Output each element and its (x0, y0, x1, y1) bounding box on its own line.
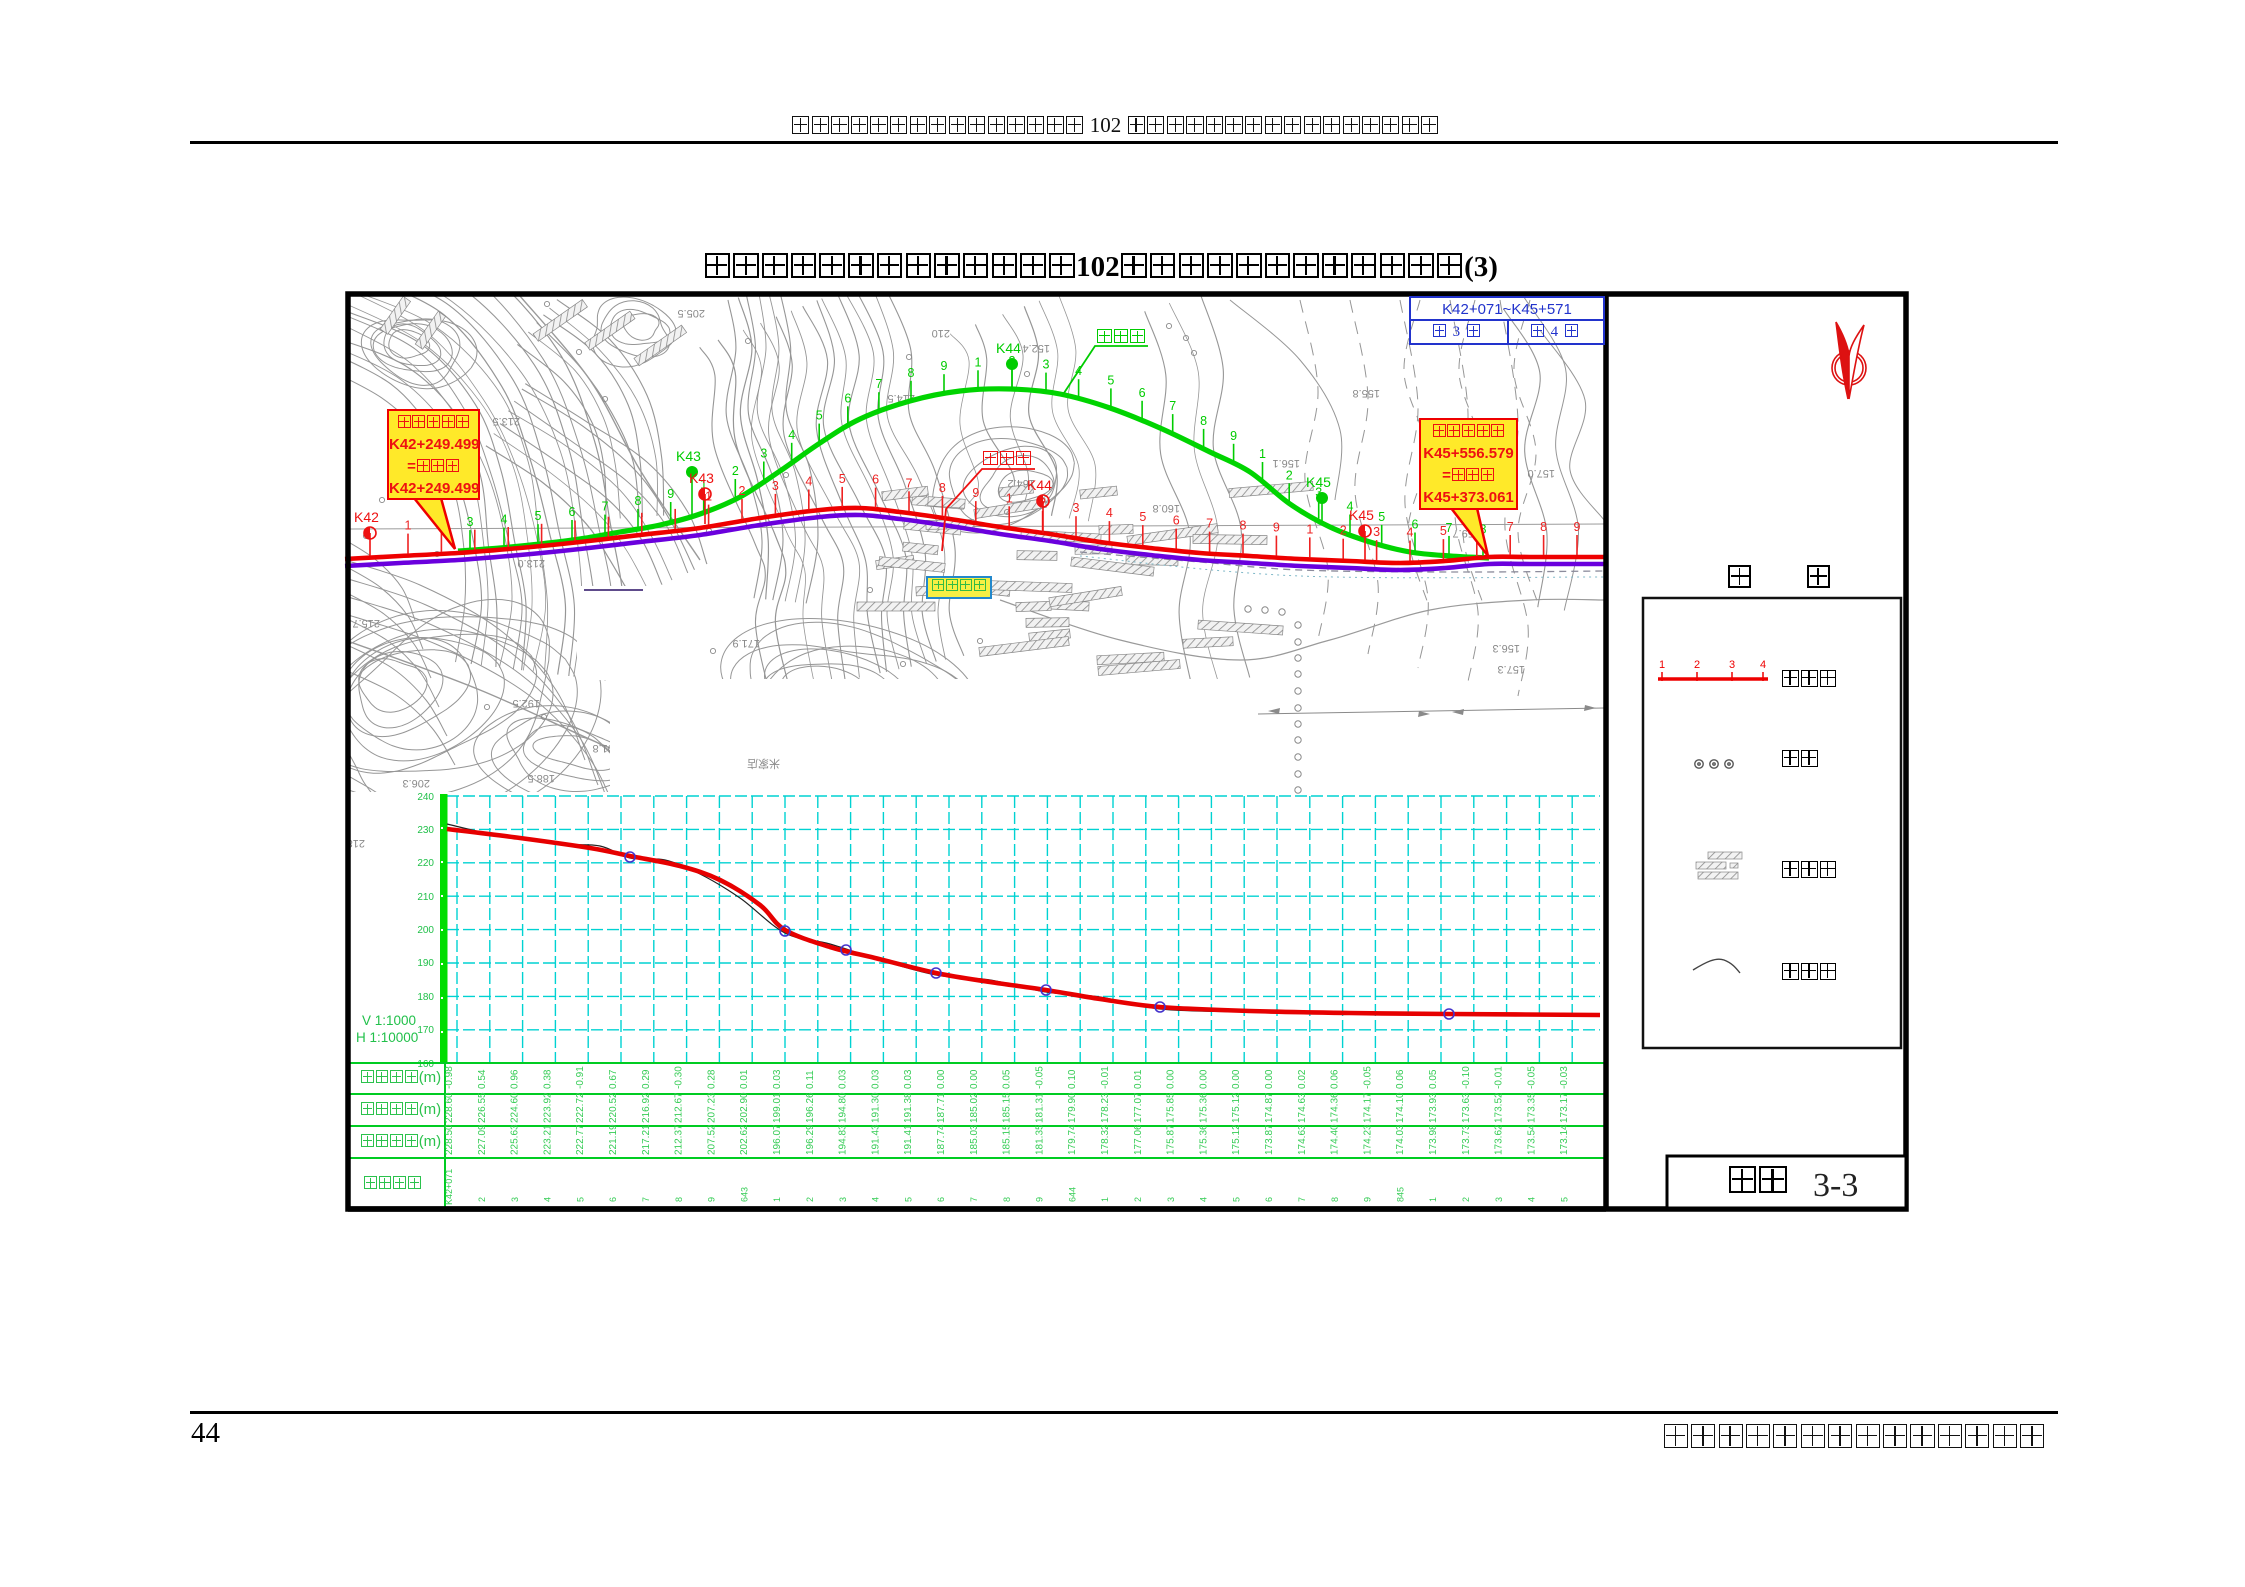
svg-text:8: 8 (908, 366, 915, 380)
svg-text:0.00: 0.00 (1198, 1069, 1209, 1089)
svg-text:2: 2 (1133, 1197, 1143, 1202)
svg-text:7: 7 (906, 476, 913, 490)
svg-text:173.52: 173.52 (1494, 1092, 1505, 1123)
svg-text:-0.05: -0.05 (1362, 1066, 1373, 1089)
svg-text:185.02: 185.02 (969, 1092, 980, 1123)
svg-text:6: 6 (569, 505, 576, 519)
svg-text:6: 6 (1264, 1197, 1274, 1202)
svg-text:227.09: 227.09 (477, 1124, 488, 1155)
svg-text:175.85: 175.85 (1166, 1092, 1177, 1123)
svg-text:5: 5 (1107, 373, 1114, 387)
svg-text:0.10: 0.10 (1067, 1069, 1078, 1089)
svg-text:4: 4 (1527, 1197, 1537, 1202)
svg-text:5: 5 (1139, 510, 1146, 524)
svg-text:221.19: 221.19 (608, 1124, 619, 1155)
svg-text:643: 643 (739, 1187, 749, 1202)
svg-text:8: 8 (1540, 520, 1547, 534)
svg-text:-0.91: -0.91 (575, 1066, 586, 1089)
svg-text:0.00: 0.00 (936, 1069, 947, 1089)
svg-text:196.26: 196.26 (805, 1092, 816, 1123)
svg-text:8: 8 (1002, 1197, 1012, 1202)
svg-text:0.02: 0.02 (1297, 1069, 1308, 1089)
svg-text:179.74: 179.74 (1067, 1124, 1078, 1155)
svg-text:202.62: 202.62 (739, 1124, 750, 1155)
svg-text:5: 5 (1378, 510, 1385, 524)
svg-text:177.06: 177.06 (1133, 1124, 1144, 1155)
svg-text:7: 7 (641, 1197, 651, 1202)
svg-text:157.3: 157.3 (1497, 663, 1525, 675)
svg-text:4: 4 (805, 475, 812, 489)
svg-text:174.03: 174.03 (1395, 1124, 1406, 1155)
svg-text:3: 3 (1373, 525, 1380, 539)
svg-text:9: 9 (1035, 1197, 1045, 1202)
svg-text:2: 2 (805, 1197, 815, 1202)
svg-text:8: 8 (635, 494, 642, 508)
svg-text:173.93: 173.93 (1428, 1092, 1439, 1123)
svg-text:3: 3 (1494, 1197, 1504, 1202)
svg-text:-0.98: -0.98 (444, 1066, 455, 1089)
svg-text:7: 7 (1169, 399, 1176, 413)
svg-text:8: 8 (1330, 1197, 1340, 1202)
svg-text:4: 4 (788, 428, 795, 442)
svg-text:187.71: 187.71 (936, 1092, 947, 1123)
svg-text:191.38: 191.38 (903, 1092, 914, 1123)
svg-text:174.87: 174.87 (1264, 1092, 1275, 1123)
svg-text:173.14: 173.14 (1559, 1124, 1570, 1155)
svg-text:H 1:10000: H 1:10000 (356, 1030, 418, 1045)
svg-text:1: 1 (1259, 447, 1266, 461)
svg-text:228.50: 228.50 (444, 1124, 455, 1155)
svg-text:0.01: 0.01 (739, 1069, 750, 1089)
svg-text:196.29: 196.29 (805, 1124, 816, 1155)
svg-text:190: 190 (417, 958, 434, 969)
svg-text:178.32: 178.32 (1100, 1124, 1111, 1155)
svg-text:4: 4 (501, 513, 508, 527)
svg-text:175.36: 175.36 (1198, 1124, 1209, 1155)
svg-text:1: 1 (1306, 522, 1313, 536)
svg-text:-0.30: -0.30 (674, 1066, 685, 1089)
svg-text:207.52: 207.52 (706, 1124, 717, 1155)
svg-text:0.06: 0.06 (1395, 1069, 1406, 1089)
svg-text:223.21: 223.21 (542, 1124, 553, 1155)
svg-text:178.23: 178.23 (1100, 1092, 1111, 1123)
svg-text:3: 3 (1166, 1197, 1176, 1202)
svg-text:-0.10: -0.10 (1461, 1066, 1472, 1089)
svg-text:9: 9 (1574, 520, 1581, 534)
svg-text:0.00: 0.00 (1231, 1069, 1242, 1089)
svg-text:179.90: 179.90 (1067, 1092, 1078, 1123)
svg-text:3: 3 (510, 1197, 520, 1202)
svg-text:174.63: 174.63 (1297, 1092, 1308, 1123)
svg-text:-0.01: -0.01 (1100, 1066, 1111, 1089)
svg-text:5: 5 (903, 1197, 913, 1202)
svg-text:6: 6 (872, 473, 879, 487)
svg-text:220: 220 (417, 858, 434, 869)
svg-text:K44: K44 (1027, 477, 1052, 493)
svg-text:1: 1 (772, 1197, 782, 1202)
svg-text:1: 1 (405, 519, 412, 533)
svg-text:0.06: 0.06 (1330, 1069, 1341, 1089)
svg-text:175.12: 175.12 (1231, 1124, 1242, 1155)
svg-text:173.62: 173.62 (1494, 1124, 1505, 1155)
svg-text:6: 6 (936, 1197, 946, 1202)
svg-text:185.03: 185.03 (969, 1124, 980, 1155)
svg-text:0.05: 0.05 (1002, 1069, 1013, 1089)
svg-text:191.41: 191.41 (903, 1124, 914, 1155)
svg-text:0.05: 0.05 (1428, 1069, 1439, 1089)
svg-text:2: 2 (477, 1197, 487, 1202)
svg-text:218.3: 218.3 (337, 837, 365, 849)
svg-text:6: 6 (1412, 518, 1419, 532)
svg-text:4: 4 (1106, 506, 1113, 520)
svg-text:1: 1 (1659, 659, 1665, 671)
svg-text:-0.05: -0.05 (1034, 1066, 1045, 1089)
svg-text:K42+071: K42+071 (444, 1169, 454, 1205)
svg-text:205.5: 205.5 (677, 307, 705, 319)
svg-text:V 1:1000: V 1:1000 (362, 1013, 416, 1028)
svg-text:0.03: 0.03 (772, 1069, 783, 1089)
svg-text:171.9: 171.9 (732, 637, 760, 649)
svg-text:2: 2 (1694, 659, 1700, 671)
svg-text:9: 9 (1273, 521, 1280, 535)
svg-text:173.17: 173.17 (1559, 1092, 1570, 1123)
svg-text:4: 4 (1199, 1197, 1209, 1202)
svg-text:210: 210 (417, 892, 434, 903)
svg-text:230: 230 (417, 825, 434, 836)
svg-text:0.00: 0.00 (969, 1069, 980, 1089)
svg-text:3: 3 (1729, 659, 1735, 671)
svg-text:225.63: 225.63 (510, 1124, 521, 1155)
svg-text:-0.01: -0.01 (1494, 1066, 1505, 1089)
svg-text:240: 240 (417, 792, 434, 803)
svg-text:155.8: 155.8 (1352, 387, 1380, 399)
svg-text:9: 9 (941, 359, 948, 373)
svg-text:0.03: 0.03 (903, 1069, 914, 1089)
svg-text:156.3: 156.3 (1492, 642, 1520, 654)
svg-text:3: 3 (467, 515, 474, 529)
svg-text:170: 170 (417, 1025, 434, 1036)
svg-text:0.00: 0.00 (1264, 1069, 1275, 1089)
svg-text:160.8: 160.8 (1152, 502, 1180, 514)
svg-text:0.54: 0.54 (477, 1069, 488, 1089)
svg-text:174.36: 174.36 (1330, 1092, 1341, 1123)
svg-text:2: 2 (1461, 1197, 1471, 1202)
svg-text:1: 1 (975, 355, 982, 369)
svg-text:174.63: 174.63 (1297, 1124, 1308, 1155)
svg-text:845: 845 (1395, 1187, 1405, 1202)
svg-text:223.92: 223.92 (542, 1092, 553, 1123)
svg-text:173.87: 173.87 (1264, 1124, 1275, 1155)
svg-text:3: 3 (838, 1197, 848, 1202)
svg-text:K43: K43 (676, 448, 701, 464)
svg-text:K42+071~K45+571: K42+071~K45+571 (1442, 301, 1572, 318)
svg-text:2: 2 (739, 484, 746, 498)
svg-text:156.1: 156.1 (1272, 457, 1300, 469)
svg-text:194.83: 194.83 (838, 1124, 849, 1155)
svg-text:213.5: 213.5 (492, 415, 520, 427)
svg-text:157.0: 157.0 (1527, 467, 1555, 479)
svg-text:187.74: 187.74 (936, 1124, 947, 1155)
svg-text:1: 1 (1428, 1197, 1438, 1202)
svg-text:9: 9 (1363, 1197, 1373, 1202)
svg-text:5: 5 (839, 472, 846, 486)
svg-text:6: 6 (1139, 386, 1146, 400)
svg-text:174.23: 174.23 (1362, 1124, 1373, 1155)
svg-text:199.01: 199.01 (772, 1092, 783, 1123)
svg-text:0.38: 0.38 (542, 1069, 553, 1089)
svg-text:6: 6 (1173, 514, 1180, 528)
svg-text:0.67: 0.67 (608, 1069, 619, 1089)
svg-text:228.60: 228.60 (444, 1092, 455, 1123)
svg-text:2: 2 (1340, 524, 1347, 538)
svg-text:194.80: 194.80 (838, 1092, 849, 1123)
svg-text:224.60: 224.60 (510, 1092, 521, 1123)
svg-text:174.10: 174.10 (1395, 1092, 1406, 1123)
svg-text:180: 180 (417, 992, 434, 1003)
svg-text:7: 7 (875, 377, 882, 391)
svg-text:4: 4 (871, 1197, 881, 1202)
svg-text:175.36: 175.36 (1198, 1092, 1209, 1123)
svg-text:7: 7 (602, 500, 609, 514)
svg-text:0.29: 0.29 (641, 1069, 652, 1089)
svg-text:0.01: 0.01 (1133, 1069, 1144, 1089)
svg-text:K43: K43 (689, 470, 714, 486)
svg-text:8: 8 (674, 1197, 684, 1202)
svg-text:0.03: 0.03 (838, 1069, 849, 1089)
svg-text:196.07: 196.07 (772, 1124, 783, 1155)
svg-text:3-3: 3-3 (1813, 1167, 1858, 1204)
svg-text:2: 2 (732, 464, 739, 478)
svg-text:175.87: 175.87 (1166, 1124, 1177, 1155)
svg-text:226.55: 226.55 (477, 1092, 488, 1123)
svg-text:173.73: 173.73 (1461, 1124, 1472, 1155)
svg-text:7: 7 (1206, 517, 1213, 531)
svg-text:9: 9 (972, 486, 979, 500)
svg-text:0.11: 0.11 (805, 1070, 816, 1089)
svg-text:2: 2 (1286, 468, 1293, 482)
svg-text:5: 5 (1559, 1197, 1569, 1202)
svg-text:3: 3 (772, 479, 779, 493)
svg-text:174.17: 174.17 (1362, 1092, 1373, 1123)
svg-text:0.28: 0.28 (706, 1069, 717, 1089)
svg-text:220.52: 220.52 (608, 1092, 619, 1123)
svg-text:0.00: 0.00 (1166, 1069, 1177, 1089)
svg-text:173.63: 173.63 (1461, 1092, 1472, 1123)
svg-text:K44: K44 (996, 340, 1021, 356)
svg-text:152.4: 152.4 (1022, 342, 1050, 354)
svg-text:7: 7 (1446, 521, 1453, 535)
svg-text:8: 8 (939, 481, 946, 495)
svg-text:173.35: 173.35 (1526, 1092, 1537, 1123)
svg-text:222.72: 222.72 (575, 1092, 586, 1123)
svg-text:177.07: 177.07 (1133, 1092, 1144, 1123)
svg-text:173.98: 173.98 (1428, 1124, 1439, 1155)
svg-text:4: 4 (543, 1197, 553, 1202)
svg-text:8: 8 (1240, 519, 1247, 533)
svg-text:K45: K45 (1349, 507, 1374, 523)
svg-text:0.03: 0.03 (870, 1069, 881, 1089)
svg-text:3: 3 (1073, 501, 1080, 515)
svg-text:181.35: 181.35 (1034, 1124, 1045, 1155)
svg-text:175.12: 175.12 (1231, 1092, 1242, 1123)
svg-text:-0.05: -0.05 (1526, 1066, 1537, 1089)
svg-text:米家店: 米家店 (747, 757, 780, 771)
svg-text:192.5: 192.5 (512, 697, 540, 709)
svg-text:7: 7 (1297, 1197, 1307, 1202)
svg-text:7: 7 (1507, 520, 1514, 534)
svg-text:191.43: 191.43 (870, 1124, 881, 1155)
svg-text:206.3: 206.3 (402, 777, 430, 789)
svg-text:9: 9 (707, 1197, 717, 1202)
svg-text:213.0: 213.0 (517, 557, 545, 569)
svg-text:7: 7 (969, 1197, 979, 1202)
svg-text:6: 6 (844, 391, 851, 405)
svg-text:9: 9 (667, 487, 674, 501)
svg-text:5: 5 (1231, 1197, 1241, 1202)
svg-text:4: 4 (1760, 659, 1766, 671)
svg-text:200: 200 (417, 925, 434, 936)
svg-text:8: 8 (1200, 414, 1207, 428)
svg-text:K42: K42 (354, 509, 379, 525)
svg-text:222.77: 222.77 (575, 1124, 586, 1155)
svg-text:5: 5 (816, 409, 823, 423)
svg-text:1: 1 (1006, 491, 1013, 505)
svg-text:0.96: 0.96 (510, 1069, 521, 1089)
svg-text:210: 210 (932, 327, 950, 339)
svg-text:1: 1 (1100, 1197, 1110, 1202)
svg-text:644: 644 (1067, 1187, 1077, 1202)
svg-text:173.54: 173.54 (1526, 1124, 1537, 1155)
svg-text:9: 9 (1230, 429, 1237, 443)
svg-text:185.15: 185.15 (1002, 1092, 1013, 1123)
svg-text:188.5: 188.5 (527, 772, 555, 784)
svg-text:212.67: 212.67 (674, 1092, 685, 1123)
svg-text:-0.03: -0.03 (1559, 1066, 1570, 1089)
svg-text:3: 3 (760, 447, 767, 461)
svg-text:217.21: 217.21 (641, 1124, 652, 1155)
svg-text:212.37: 212.37 (674, 1124, 685, 1155)
svg-text:174.40: 174.40 (1330, 1124, 1341, 1155)
svg-text:K45: K45 (1306, 474, 1331, 490)
svg-text:185.15: 185.15 (1002, 1124, 1013, 1155)
svg-text:191.30: 191.30 (870, 1092, 881, 1123)
svg-text:216.92: 216.92 (641, 1092, 652, 1123)
svg-text:6: 6 (608, 1197, 618, 1202)
svg-text:207.23: 207.23 (706, 1092, 717, 1123)
svg-text:181.31: 181.31 (1034, 1092, 1045, 1123)
svg-text:202.90: 202.90 (739, 1092, 750, 1123)
svg-text:215.7: 215.7 (352, 617, 380, 629)
svg-text:5: 5 (575, 1197, 585, 1202)
svg-text:3: 3 (1043, 358, 1050, 372)
svg-text:5: 5 (535, 509, 542, 523)
